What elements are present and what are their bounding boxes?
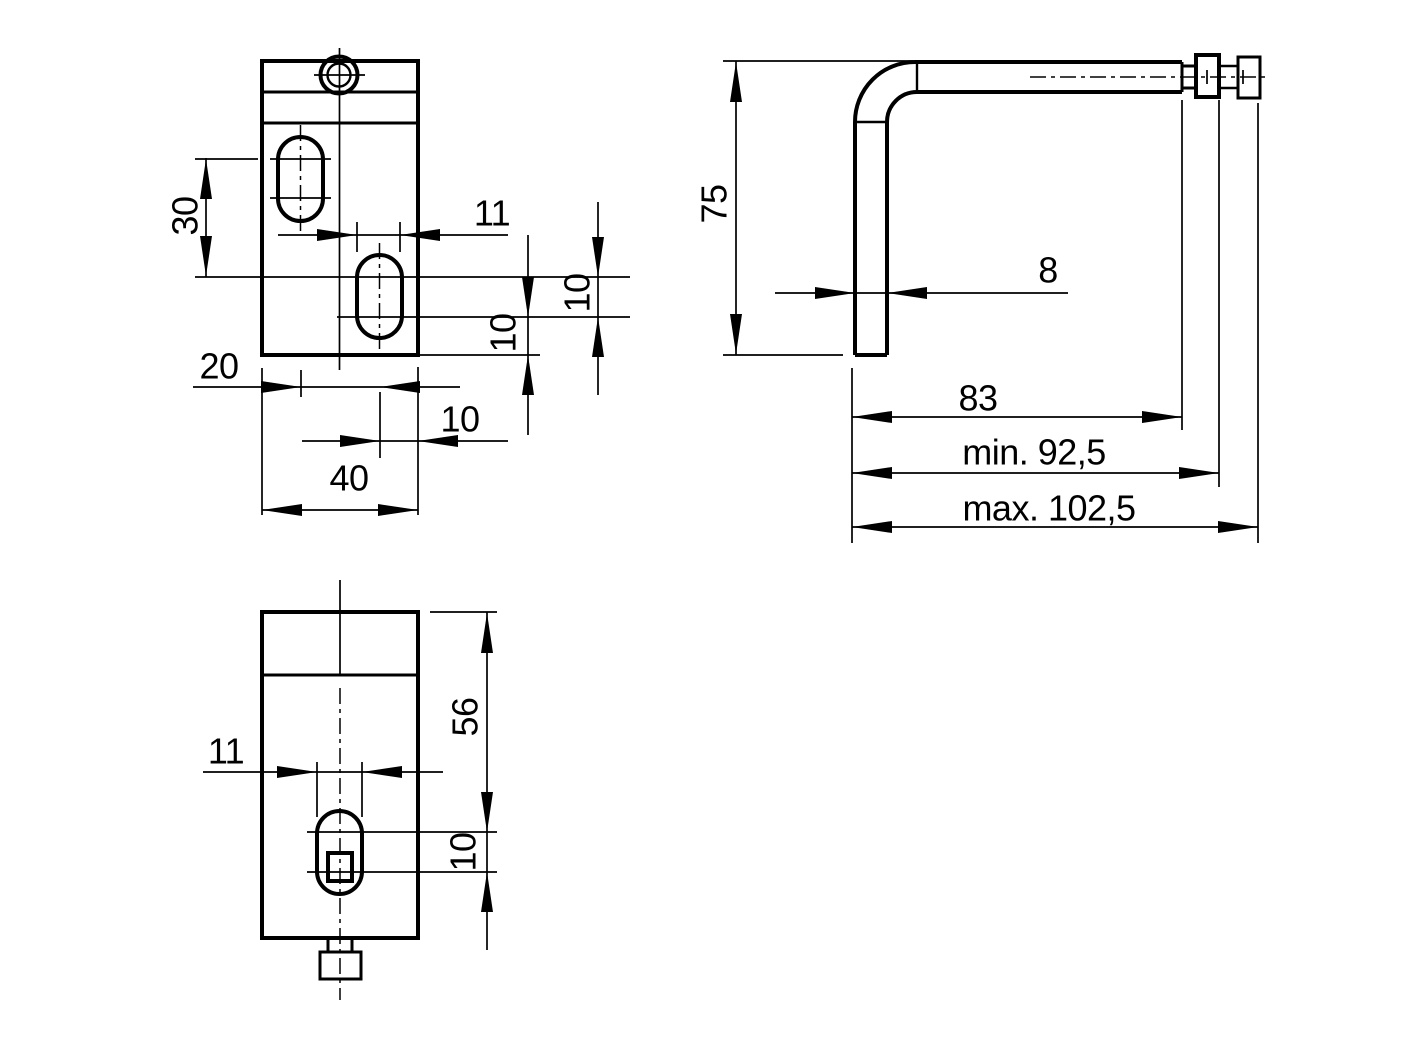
dim-arrow bbox=[730, 314, 742, 354]
dim-label-front-11: 11 bbox=[474, 193, 510, 234]
side-outer-profile bbox=[855, 62, 1182, 355]
dim-arrow bbox=[340, 435, 380, 447]
dim-arrow bbox=[592, 317, 604, 357]
drawing-canvas: 3011101020104075883min. 92,5max. 102,511… bbox=[0, 0, 1417, 1063]
dim-arrow bbox=[378, 504, 418, 516]
dim-arrow bbox=[887, 287, 927, 299]
dim-arrow bbox=[481, 613, 493, 653]
dim-label-bottom-11: 11 bbox=[208, 731, 244, 772]
dim-label-front-10-edge: 10 bbox=[483, 313, 524, 352]
dim-arrow bbox=[852, 467, 892, 479]
dim-arrow bbox=[481, 872, 493, 912]
dim-arrow bbox=[522, 277, 534, 317]
dim-arrow bbox=[1142, 411, 1182, 423]
dim-arrow bbox=[1218, 521, 1258, 533]
dim-label-side-max-1025: max. 102,5 bbox=[962, 488, 1135, 529]
dim-label-side-83: 83 bbox=[958, 378, 997, 419]
dim-arrow bbox=[277, 766, 317, 778]
side-inner-profile bbox=[887, 92, 1182, 355]
dim-arrow bbox=[815, 287, 855, 299]
dim-label-front-10-slot-pitch: 10 bbox=[557, 273, 598, 312]
dim-arrow bbox=[522, 355, 534, 395]
dim-arrow bbox=[362, 766, 402, 778]
dim-label-side-8: 8 bbox=[1038, 250, 1058, 291]
dim-label-bottom-56: 56 bbox=[445, 697, 486, 736]
technical-drawing-sheet: 3011101020104075883min. 92,5max. 102,511… bbox=[0, 0, 1417, 1063]
bottom-view bbox=[203, 580, 497, 1000]
dim-label-bottom-10: 10 bbox=[443, 832, 484, 871]
dim-arrow bbox=[730, 62, 742, 102]
dim-arrow bbox=[317, 229, 357, 241]
dim-arrow bbox=[262, 504, 302, 516]
dim-label-front-10-bottom: 10 bbox=[440, 399, 479, 440]
dim-label-side-min-925: min. 92,5 bbox=[962, 432, 1106, 473]
dim-arrow bbox=[200, 236, 212, 276]
dim-arrow bbox=[380, 381, 420, 393]
dim-label-side-75: 75 bbox=[694, 184, 735, 223]
dim-arrow bbox=[852, 411, 892, 423]
dim-arrow bbox=[261, 381, 301, 393]
dim-label-front-20: 20 bbox=[199, 346, 238, 387]
dim-arrow bbox=[200, 159, 212, 199]
dim-arrow bbox=[481, 792, 493, 832]
dim-arrow bbox=[852, 521, 892, 533]
dim-label-front-40: 40 bbox=[329, 458, 368, 499]
dim-arrow bbox=[592, 237, 604, 277]
dimension-labels: 3011101020104075883min. 92,5max. 102,511… bbox=[165, 184, 1136, 871]
dim-arrow bbox=[1179, 467, 1219, 479]
dim-label-front-30: 30 bbox=[165, 196, 206, 235]
